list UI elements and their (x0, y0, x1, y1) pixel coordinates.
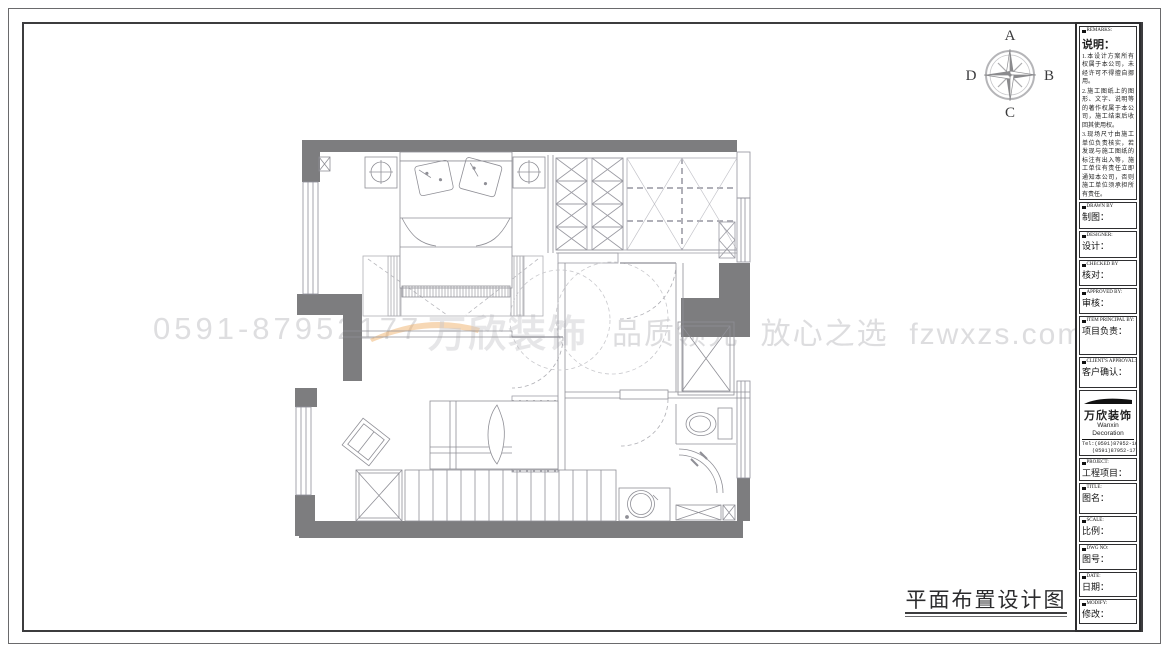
field-header: SCALE: (1087, 518, 1104, 525)
bullet-square-icon (1082, 603, 1086, 607)
compass-label-south: C (1005, 105, 1015, 120)
checked-by-section: CHECKED BY 核对： (1079, 260, 1137, 286)
bullet-square-icon (1082, 548, 1086, 552)
bullet-square-icon (1082, 235, 1086, 239)
compass-label-east: B (1044, 68, 1054, 84)
bath-bench (676, 505, 735, 520)
title-underline-thin (905, 616, 1067, 617)
project-section: PROJECT: 工程项目： (1079, 458, 1137, 481)
door-bedroom2 (512, 337, 563, 388)
remarks-title: 说明： (1082, 36, 1134, 52)
field-header: PROJECT: (1087, 460, 1109, 467)
wardrobe (556, 158, 737, 263)
bullet-square-icon (1082, 487, 1086, 491)
field-header: MODIFY: (1087, 601, 1108, 608)
field-header: CHECKED BY (1087, 262, 1119, 269)
field-header: DESIGNER: (1087, 233, 1113, 240)
field-label: 修改： (1082, 608, 1134, 620)
remarks-section: REMARKS: 说明： 1.本设计方案所有权属于本公司，未经许可不得擅自挪用。… (1079, 26, 1137, 200)
title-block: REMARKS: 说明： 1.本设计方案所有权属于本公司，未经许可不得擅自挪用。… (1075, 22, 1141, 632)
field-header: ITEM PRINCIPAL BY: (1087, 318, 1135, 325)
bullet-square-icon (1082, 206, 1086, 210)
field-header: DWG NO: (1087, 546, 1109, 553)
date-section: DATE: 日期： (1079, 572, 1137, 597)
field-label: 项目负责： (1082, 325, 1134, 337)
field-header: DATE: (1087, 574, 1101, 581)
bullet-square-icon (1082, 30, 1086, 34)
chair (342, 418, 390, 466)
sink (619, 488, 670, 521)
item-principal-section: ITEM PRINCIPAL BY: 项目负责： (1079, 316, 1137, 355)
field-header: TITLE: (1087, 485, 1102, 492)
bullet-square-icon (1082, 264, 1086, 268)
drawing-title: 平面布置设计图 (905, 584, 1067, 614)
modify-section: MODIFY: 修改： (1079, 599, 1137, 624)
company-logo-swoosh-icon (1082, 396, 1134, 405)
bullet-square-icon (1082, 361, 1086, 365)
bullet-square-icon (1082, 462, 1086, 466)
remarks-header: REMARKS: (1087, 28, 1113, 35)
field-label: 图名： (1082, 492, 1134, 504)
door-bathroom (620, 390, 668, 446)
field-label: 图号： (1082, 553, 1134, 565)
bullet-square-icon (1082, 576, 1086, 580)
drawn-by-section: DRAWN BY 制图： (1079, 202, 1137, 229)
company-tel1: Tel:(0591)87952-166 (1082, 441, 1134, 449)
bathroom (565, 390, 750, 521)
bullet-square-icon (1082, 320, 1086, 324)
approved-by-section: APPROVED BY: 审核： (1079, 288, 1137, 314)
scale-section: SCALE: 比例： (1079, 516, 1137, 542)
client-approval-section: CLIENT'S APPROVAL: 客户确认： (1079, 357, 1137, 388)
field-label: 设计： (1082, 240, 1134, 252)
company-logo-en: Wanxin Decoration (1082, 422, 1134, 440)
field-header: DRAWN BY (1087, 204, 1114, 211)
field-label: 比例： (1082, 525, 1134, 537)
remark-item: 1.本设计方案所有权属于本公司，未经许可不得擅自挪用。 (1082, 53, 1134, 87)
cabinet-x (356, 470, 402, 521)
compass-rose: A B C D (964, 24, 1056, 120)
bullet-square-icon (1082, 292, 1086, 296)
compass-label-north: A (1005, 28, 1016, 44)
blueprint-page: 0591-87952177 万欣装饰 品质领先 放心之选 fzwxzs.com (0, 0, 1170, 653)
compass-label-west: D (966, 68, 977, 84)
field-header: APPROVED BY: (1087, 290, 1123, 297)
stair-treads (405, 470, 616, 521)
remark-item: 3.现场尺寸由施工单位负责核实，若发现与施工图纸的标注有出入等，施工单位有责任立… (1082, 131, 1134, 199)
field-label: 审核： (1082, 297, 1134, 309)
shower (679, 449, 723, 493)
bedroom2 (342, 396, 616, 521)
bullet-square-icon (1082, 520, 1086, 524)
field-label: 日期： (1082, 581, 1134, 593)
company-tel2: (0591)87952-177 (1082, 448, 1134, 456)
field-label: 客户确认： (1082, 366, 1134, 378)
field-header: CLIENT'S APPROVAL: (1087, 359, 1137, 366)
title-underline (905, 612, 1067, 614)
floor-plan (290, 130, 765, 550)
remark-item: 2.施工图纸上的图形、文字、说明等的著作权属于本公司，施工结束后收回其使用权。 (1082, 88, 1134, 131)
title-section: TITLE: 图名： (1079, 483, 1137, 514)
compass-star (984, 49, 1036, 101)
toilet (686, 408, 732, 439)
field-label: 制图： (1082, 211, 1134, 223)
designer-section: DESIGNER: 设计： (1079, 231, 1137, 258)
field-label: 核对： (1082, 269, 1134, 281)
dwg-no-section: DWG NO: 图号： (1079, 544, 1137, 570)
company-section: 万欣装饰 Wanxin Decoration Tel:(0591)87952-1… (1079, 390, 1137, 456)
company-logo-cn: 万欣装饰 (1082, 410, 1134, 422)
field-label: 工程项目： (1082, 467, 1134, 479)
